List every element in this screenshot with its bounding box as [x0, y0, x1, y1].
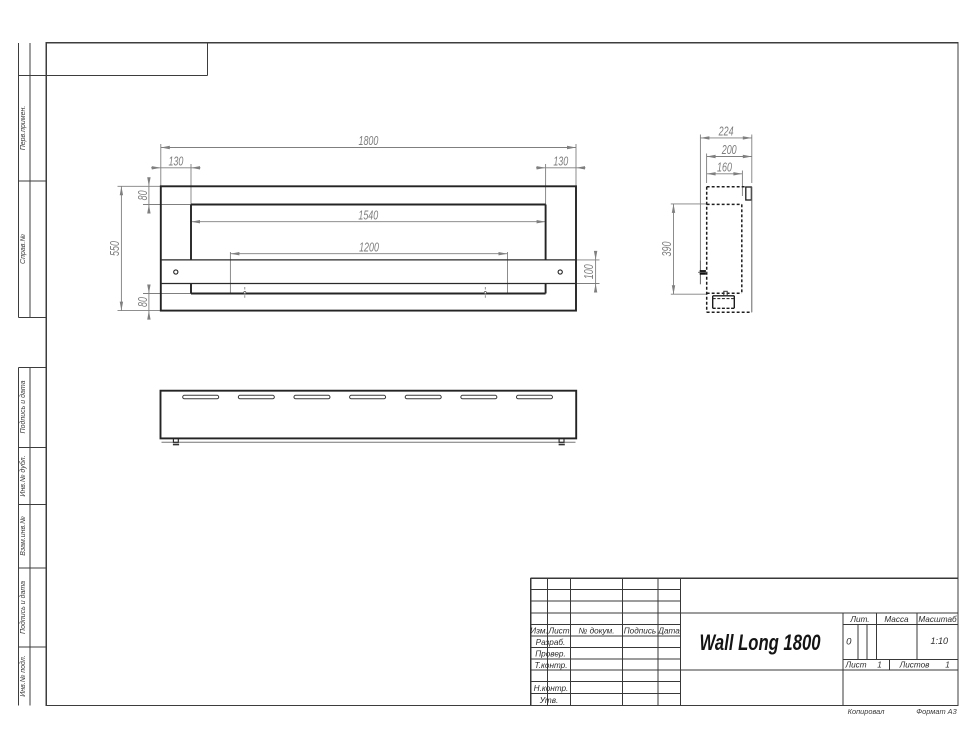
svg-text:1: 1 — [877, 661, 882, 670]
svg-text:130: 130 — [168, 154, 183, 169]
svg-text:Масштаб: Масштаб — [918, 615, 957, 624]
svg-text:550: 550 — [107, 241, 122, 256]
svg-text:Изм.: Изм. — [530, 626, 547, 635]
svg-text:Т.контр.: Т.контр. — [534, 661, 567, 670]
svg-text:1: 1 — [945, 661, 950, 670]
svg-text:224: 224 — [718, 124, 734, 139]
svg-text:Утв.: Утв. — [539, 696, 559, 705]
svg-text:Масса: Масса — [884, 615, 909, 624]
svg-text:Wall Long 1800: Wall Long 1800 — [700, 630, 822, 655]
svg-text:Инв.№ подл.: Инв.№ подл. — [19, 655, 27, 697]
svg-text:160: 160 — [717, 160, 732, 175]
svg-text:Подпись и дата: Подпись и дата — [19, 581, 27, 634]
svg-text:Подпись и дата: Подпись и дата — [19, 380, 27, 433]
svg-text:№ докум.: № докум. — [578, 626, 614, 635]
svg-text:Лист: Лист — [844, 661, 866, 670]
svg-text:Н.контр.: Н.контр. — [534, 684, 569, 693]
svg-text:Лист: Лист — [547, 626, 569, 635]
svg-text:130: 130 — [553, 154, 568, 169]
svg-text:Копировал: Копировал — [848, 707, 886, 716]
svg-text:390: 390 — [659, 241, 674, 256]
svg-text:80: 80 — [135, 190, 150, 200]
svg-text:1200: 1200 — [359, 239, 379, 254]
svg-text:100: 100 — [581, 264, 596, 279]
svg-text:Листов: Листов — [899, 661, 931, 670]
svg-text:1:10: 1:10 — [931, 636, 949, 646]
svg-text:Формат А3: Формат А3 — [916, 707, 957, 716]
svg-text:Лит.: Лит. — [849, 615, 869, 624]
svg-text:Справ.№: Справ.№ — [20, 234, 27, 264]
svg-text:Разраб.: Разраб. — [536, 638, 566, 647]
svg-text:Провер.: Провер. — [535, 649, 566, 658]
svg-text:200: 200 — [721, 142, 737, 157]
svg-text:Перв.примен.: Перв.примен. — [20, 106, 27, 151]
svg-text:Подпись: Подпись — [624, 626, 656, 635]
svg-text:1800: 1800 — [359, 133, 379, 148]
svg-text:Дата: Дата — [657, 626, 680, 635]
svg-text:Инв.№ дубл.: Инв.№ дубл. — [19, 455, 27, 496]
svg-text:80: 80 — [135, 297, 150, 307]
svg-text:1540: 1540 — [358, 207, 378, 222]
svg-text:Взам.инв.№: Взам.инв.№ — [20, 516, 27, 556]
svg-text:0: 0 — [846, 637, 852, 648]
